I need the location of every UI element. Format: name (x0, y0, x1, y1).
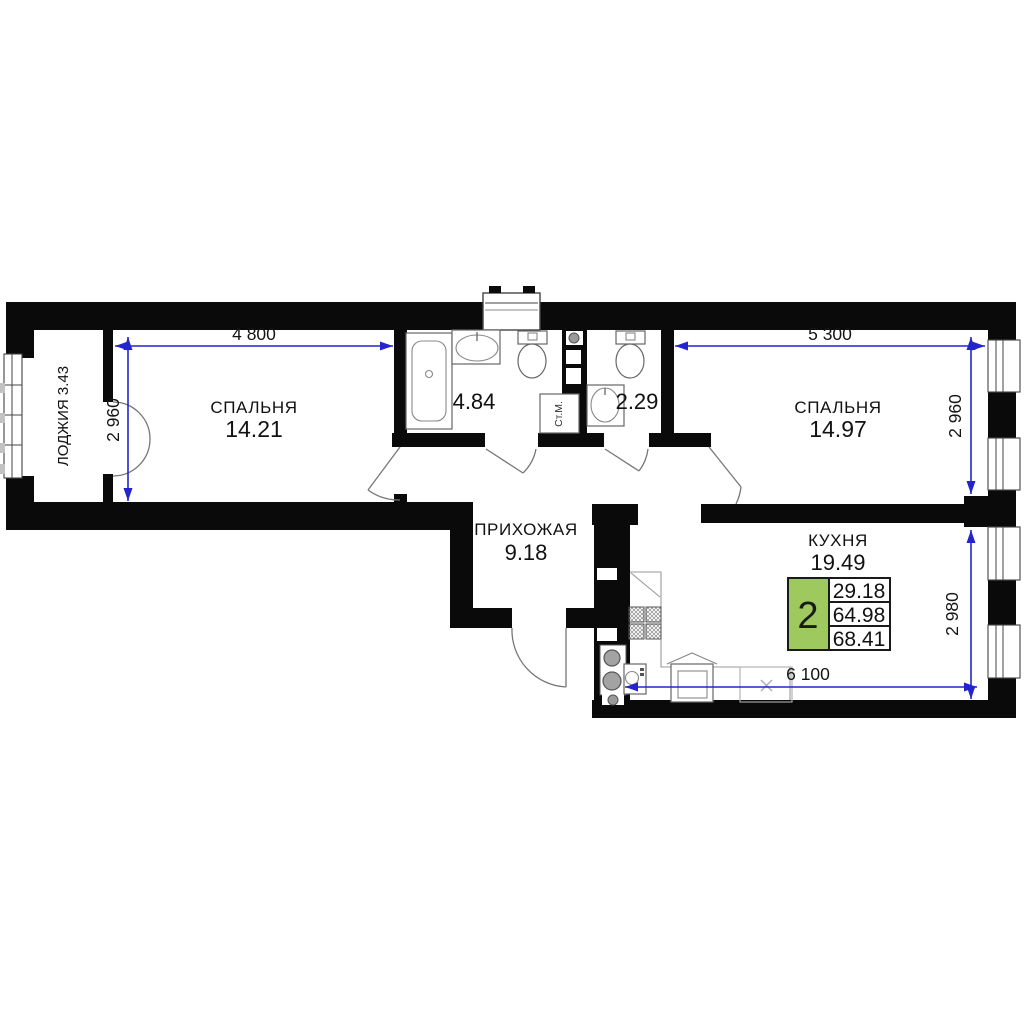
shaft-slot (566, 368, 581, 384)
wc-door-leaf (605, 449, 639, 471)
wc-area: 2.29 (616, 389, 659, 414)
wall-hall-bottom (450, 608, 512, 628)
wall-loggia-jamb-bottom (103, 474, 113, 504)
wall-wc-right (661, 330, 674, 433)
wc-door-arc (639, 449, 648, 471)
loggia-label: ЛОДЖИЯ 3.43 (55, 366, 72, 466)
kitchen-name: КУХНЯ (808, 531, 868, 550)
vent-block-top (483, 286, 540, 330)
shaft-slot (566, 350, 581, 364)
apartment-info-badge: 2 29.18 64.98 68.41 (788, 578, 890, 651)
room-bathroom (407, 330, 562, 433)
badge-value-3: 68.41 (833, 628, 886, 651)
dim-label-4800: 4 800 (232, 324, 276, 344)
wall-loggia-jamb-top (103, 330, 113, 402)
floor-plan-page: ЛОДЖИЯ 3.43 СПАЛЬНЯ 14.21 4.84 2.29 СПАЛ… (0, 0, 1024, 1024)
wall-entry-jamb (566, 608, 594, 628)
riser-pipe-icon (603, 672, 621, 690)
badge-rooms-count: 2 (797, 595, 818, 637)
riser-pipe-icon (608, 695, 618, 705)
dim-label-6100: 6 100 (786, 664, 830, 684)
riser-pipe-icon (569, 333, 579, 343)
dim-label-2960-right: 2 960 (945, 394, 965, 438)
wall-bedroom2-bottom (701, 504, 971, 523)
hallway-name: ПРИХОЖАЯ (474, 520, 578, 539)
wall-bottom-bedroom1 (6, 502, 473, 530)
shaft-slot (597, 628, 617, 641)
bedroom2-area: 14.97 (809, 416, 867, 442)
washing-machine-label: Ст.М. (553, 401, 565, 427)
kitchen-area: 19.49 (810, 550, 865, 575)
dim-label-2980: 2 980 (942, 592, 962, 636)
shaft-slot (597, 568, 617, 580)
wall-bedroom1-right (394, 330, 407, 447)
badge-value-2: 64.98 (833, 604, 886, 627)
wall-bath-bottom-1 (392, 433, 485, 447)
bedroom1-area: 14.21 (225, 416, 283, 442)
bedroom1-name: СПАЛЬНЯ (210, 398, 297, 417)
kitchen-window-1 (988, 527, 1020, 580)
badge-value-1: 29.18 (833, 580, 886, 603)
bathroom-area: 4.84 (453, 389, 496, 414)
dim-label-2960-left: 2 960 (103, 398, 123, 442)
wall-kitchen-bottom (592, 700, 1016, 718)
dim-label-5300: 5 300 (808, 324, 852, 344)
entry-door-arc (512, 628, 566, 687)
bedroom2-window-2 (988, 438, 1020, 490)
loggia-glazing (0, 354, 22, 478)
riser-pipe-icon (604, 650, 620, 666)
room-wc (587, 330, 661, 433)
hallway-area: 9.18 (505, 540, 548, 565)
floor-plan-drawing: ЛОДЖИЯ 3.43 СПАЛЬНЯ 14.21 4.84 2.29 СПАЛ… (0, 0, 1024, 1024)
bedroom2-window-1 (988, 340, 1020, 392)
bedroom2-name: СПАЛЬНЯ (794, 398, 881, 417)
kitchen-window-2 (988, 625, 1020, 678)
